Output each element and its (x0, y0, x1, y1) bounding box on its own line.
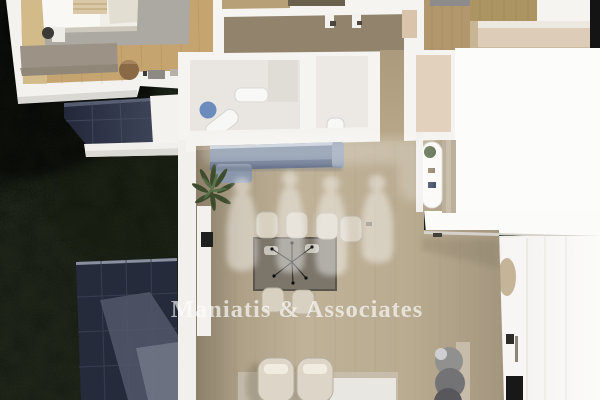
svg-text:Maniatis & Associates: Maniatis & Associates (171, 296, 423, 323)
